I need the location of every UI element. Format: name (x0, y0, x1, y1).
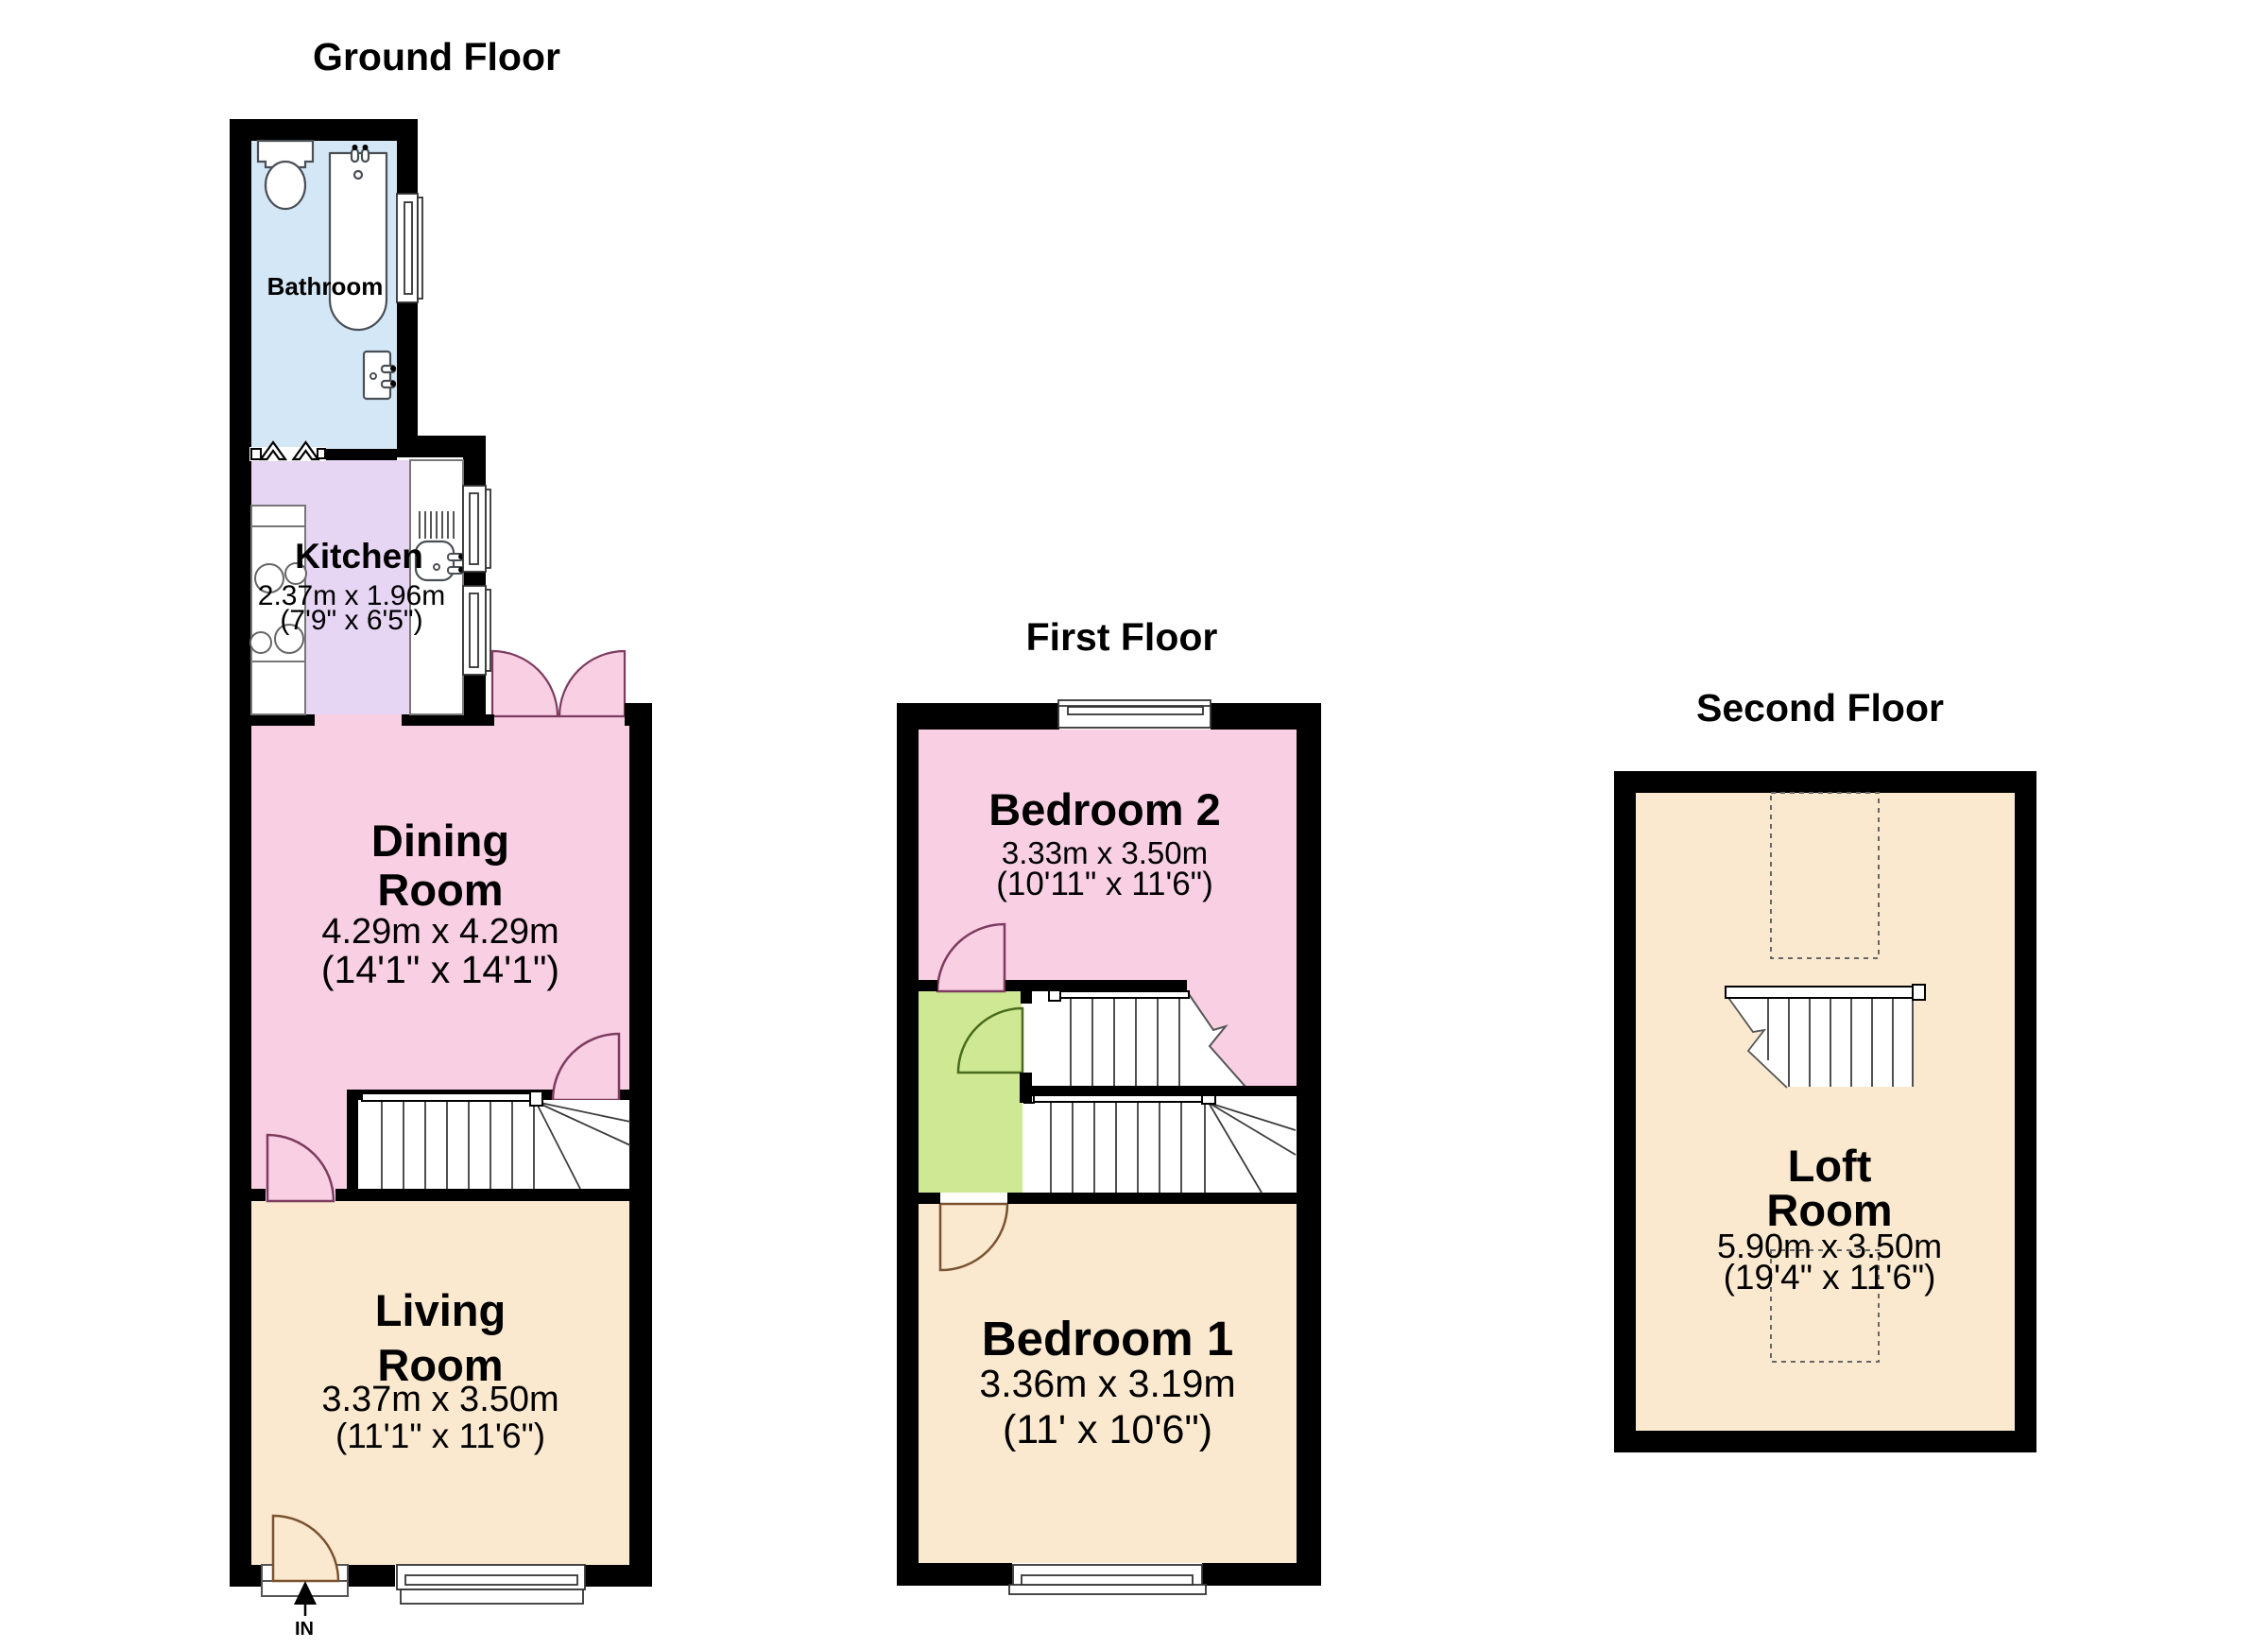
svg-text:IN: IN (295, 1619, 314, 1640)
svg-text:First Floor: First Floor (1026, 615, 1218, 659)
svg-text:4.29m x 4.29m: 4.29m x 4.29m (321, 912, 558, 952)
svg-text:Second Floor: Second Floor (1696, 686, 1944, 730)
svg-text:Kitchen: Kitchen (295, 537, 423, 575)
svg-text:Living: Living (375, 1285, 506, 1335)
svg-text:(19'4" x 11'6"): (19'4" x 11'6") (1724, 1258, 1936, 1297)
svg-text:Bedroom 1: Bedroom 1 (982, 1312, 1233, 1366)
svg-text:(7'9" x 6'5"): (7'9" x 6'5") (280, 605, 422, 636)
svg-text:3.36m x 3.19m: 3.36m x 3.19m (979, 1362, 1235, 1405)
svg-text:Loft: Loft (1788, 1141, 1872, 1191)
svg-text:Room: Room (377, 865, 503, 915)
svg-text:Bedroom 2: Bedroom 2 (988, 784, 1221, 834)
svg-text:Dining: Dining (371, 816, 509, 866)
svg-text:(14'1" x 14'1"): (14'1" x 14'1") (321, 948, 559, 991)
svg-text:(10'11" x 11'6"): (10'11" x 11'6") (996, 866, 1213, 902)
svg-text:(11'1" x 11'6"): (11'1" x 11'6") (335, 1417, 545, 1455)
svg-text:(11' x 10'6"): (11' x 10'6") (1003, 1407, 1212, 1452)
svg-text:3.37m x 3.50m: 3.37m x 3.50m (321, 1380, 558, 1419)
svg-text:Bathroom: Bathroom (267, 272, 384, 301)
svg-text:Ground Floor: Ground Floor (313, 35, 560, 78)
